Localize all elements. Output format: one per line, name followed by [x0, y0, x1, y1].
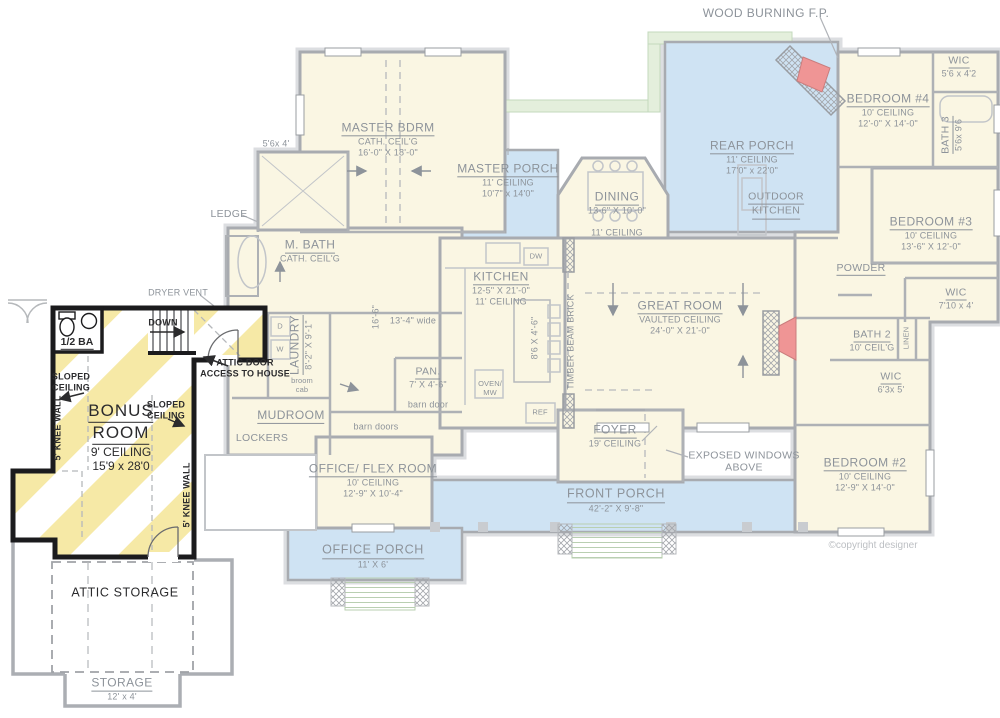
- room-dims: 24'-0" X 21'-0": [650, 325, 710, 336]
- label-washer-unit: W: [276, 346, 283, 355]
- callout-text: ACCESS TO HOUSE: [200, 368, 290, 379]
- room-dims: 7' X 4'-6": [409, 380, 447, 391]
- room-ceiling: 9' CEILING: [91, 445, 151, 459]
- label-m-bath: M. BATH CATH. CEIL'G: [280, 238, 340, 265]
- label-dryer-vent: DRYER VENT: [148, 288, 208, 299]
- room-name: MUDROOM: [257, 408, 324, 424]
- room-name: OFFICE PORCH: [322, 542, 424, 559]
- label-timber-beam: TIMBER BEAM BRICK: [566, 294, 577, 389]
- label-rear-porch: REAR PORCH 11' CEILING 17'0" x 22'0": [710, 138, 794, 175]
- door-note: barn doors: [353, 422, 398, 433]
- room-name: LAUNDRY: [288, 315, 304, 375]
- room-name: STORAGE: [91, 676, 152, 692]
- label-attic-storage: ATTIC STORAGE: [71, 586, 178, 601]
- room-dims: 5'6x 9'6: [954, 119, 965, 151]
- label-hall-length: 16'-6": [371, 305, 382, 329]
- room-name: LINEN: [903, 327, 912, 350]
- room-ceiling: 10' CEILING: [905, 230, 957, 241]
- label-wood-burning-fp: WOOD BURNING F.P.: [703, 6, 830, 20]
- label-wic-bed2: WIC 6'3x 5': [878, 371, 905, 396]
- label-pantry: PAN. 7' X 4'-6": [409, 366, 447, 391]
- room-dims: 12'-9" X 10'-4": [343, 488, 403, 499]
- room-dims: 15'9 x 28'0: [92, 459, 149, 473]
- room-name: OUTDOOR: [748, 191, 804, 205]
- room-ceiling: 10' CEILING: [862, 107, 914, 118]
- room-name: KITCHEN: [473, 269, 528, 285]
- appliance-text: MW: [483, 389, 497, 398]
- room-name: DINING: [595, 190, 639, 206]
- label-knee-wall-left: 5' KNEE WALL: [53, 395, 64, 460]
- label-dishwasher: DW: [530, 253, 543, 262]
- room-name: BEDROOM #3: [890, 214, 973, 230]
- room-name: WIC: [948, 55, 969, 69]
- room-name: BEDROOM #2: [824, 455, 907, 471]
- room-name: POWDER: [836, 262, 885, 276]
- room-ceiling: 19' CEILING: [589, 439, 641, 450]
- hall-dims: 16'-6": [371, 305, 382, 329]
- room-name: 1/2 BA: [61, 336, 94, 350]
- wall-note: 5' KNEE WALL: [182, 462, 193, 527]
- room-name: ATTIC STORAGE: [71, 586, 178, 601]
- room-dims: 10'7" x 14'0": [482, 188, 534, 199]
- room-name: GREAT ROOM: [638, 298, 723, 314]
- callout-text: LEDGE: [210, 208, 247, 220]
- room-dims: 12'-0" X 14'-0": [858, 118, 918, 129]
- label-wic-bed3: WIC 7'10 x 4': [939, 287, 974, 312]
- room-dims: 5'6x 4': [263, 139, 290, 150]
- label-wic-bed4: WIC 5'6 x 4'2: [942, 55, 977, 80]
- label-lockers: LOCKERS: [236, 432, 288, 444]
- room-dims: 6'3x 5': [878, 385, 905, 396]
- room-name: WIC: [880, 371, 901, 385]
- room-ceiling: 11' CEILING: [475, 296, 527, 307]
- room-name: WIC: [945, 287, 966, 301]
- label-master-porch: MASTER PORCH 11' CEILING 10'7" x 14'0": [457, 161, 558, 198]
- label-office-flex: OFFICE/ FLEX ROOM 10' CEILING 12'-9" X 1…: [309, 461, 437, 498]
- room-dims: 13'-6" X 12'-0": [901, 241, 961, 252]
- label-kitchen: KITCHEN 12-5" X 21'-0" 11' CEILING: [472, 269, 530, 306]
- callout-text: DRYER VENT: [148, 288, 208, 299]
- callout-text: ATTIC DOOR: [216, 357, 273, 368]
- label-great-room: GREAT ROOM VAULTED CEILING 24'-0" X 21'-…: [638, 298, 723, 335]
- label-hall-width: 13'-4" wide: [390, 316, 436, 327]
- label-office-porch: OFFICE PORCH 11' X 6': [322, 542, 424, 569]
- ceiling-note: CEILING: [52, 382, 90, 393]
- wall-note: TIMBER BEAM BRICK: [566, 294, 577, 389]
- appliance-text: W: [276, 346, 283, 355]
- callout-text: WOOD BURNING F.P.: [703, 6, 830, 20]
- label-laundry: LAUNDRY 8'-2" X 9'-1": [288, 315, 315, 375]
- room-ceiling: 11' CEILING: [726, 154, 778, 165]
- label-linen: LINEN: [903, 327, 912, 350]
- appliance-text: DW: [530, 253, 543, 262]
- label-oven-mw: OVEN/ MW: [478, 380, 502, 398]
- room-dims: 16'-0" X 18'-0": [358, 147, 418, 158]
- label-dining-ceiling: 11' CEILING: [591, 228, 643, 239]
- label-dining: DINING 13-6" X 10'-0": [588, 190, 646, 217]
- callout-text: ABOVE: [725, 462, 763, 474]
- wall-note: 5' KNEE WALL: [53, 395, 64, 460]
- room-dims: 5'6 x 4'2: [942, 69, 977, 80]
- label-sloped-ceiling-left: SLOPED CEILING: [52, 371, 90, 392]
- room-dims: 7'10 x 4': [939, 301, 974, 312]
- room-ceiling: 10' CEIL'G: [850, 343, 895, 354]
- door-note: barn door: [408, 400, 448, 411]
- label-foyer: FOYER 19' CEILING: [589, 423, 641, 450]
- room-name: PAN.: [416, 366, 441, 380]
- room-name: OFFICE/ FLEX ROOM: [309, 461, 437, 477]
- label-dryer-unit: D: [277, 323, 283, 332]
- room-ceiling: 10' CEILING: [839, 471, 891, 482]
- appliance-text: D: [277, 323, 283, 332]
- label-front-porch: FRONT PORCH 42'-2" X 9'-8": [567, 486, 665, 513]
- label-outdoor-kitchen: OUTDOOR KITCHEN: [748, 191, 804, 220]
- room-ceiling: CATH. CEIL'G: [358, 136, 418, 147]
- label-ref: REF: [532, 409, 547, 418]
- room-name: MASTER BDRM: [341, 120, 434, 136]
- room-name: BATH 2: [853, 329, 891, 343]
- island-dims: 8'6 X 4'-6": [530, 317, 541, 360]
- label-ledge: LEDGE: [210, 208, 247, 220]
- label-island-dims: 8'6 X 4'-6": [530, 317, 541, 360]
- room-dims: 11' X 6': [358, 559, 388, 570]
- room-ceiling: CATH. CEIL'G: [280, 254, 340, 265]
- room-name: MASTER PORCH: [457, 161, 558, 177]
- label-master-bdrm: MASTER BDRM CATH. CEIL'G 16'-0" X 18'-0": [341, 120, 434, 157]
- copyright-text: ©copyright designer: [828, 540, 917, 552]
- room-dims: 8'-2" X 9'-1": [304, 320, 315, 369]
- room-name: FOYER: [593, 423, 636, 439]
- room-name: BATH 3: [940, 116, 954, 154]
- ceiling-note: SLOPED: [52, 371, 90, 382]
- room-name: BEDROOM #4: [847, 91, 930, 107]
- label-mudroom: MUDROOM: [257, 408, 324, 424]
- label-bonus-room: BONUS ROOM 9' CEILING 15'9 x 28'0: [88, 401, 153, 473]
- label-barn-door: barn door: [408, 400, 448, 411]
- mud-porch: [205, 455, 316, 530]
- label-shower-dims: 5'6x 4': [263, 139, 290, 150]
- room-name: REAR PORCH: [710, 138, 794, 154]
- room-ceiling: 11' CEILING: [591, 228, 643, 239]
- room-dims: 17'0" x 22'0": [726, 165, 778, 176]
- room-dims: 13-6" X 10'-0": [588, 206, 646, 217]
- copyright-note: ©copyright designer: [828, 540, 917, 552]
- callout-text: EXPOSED WINDOWS: [688, 450, 799, 462]
- label-broom-cab: broom cab: [291, 377, 313, 395]
- label-barn-doors: barn doors: [353, 422, 398, 433]
- label-knee-wall-right: 5' KNEE WALL: [182, 462, 193, 527]
- label-powder: POWDER: [836, 262, 885, 276]
- room-name: BONUS: [88, 401, 153, 423]
- room-name: KITCHEN: [752, 205, 800, 219]
- label-attic-door: ATTIC DOOR ACCESS TO HOUSE: [200, 357, 290, 378]
- stair-note: DOWN: [148, 318, 177, 329]
- appliance-text: REF: [532, 409, 547, 418]
- room-dims: 12'-9" X 14'-0": [835, 482, 895, 493]
- room-ceiling: 10' CEILING: [347, 477, 399, 488]
- label-half-bath: 1/2 BA: [61, 336, 94, 350]
- label-bath2: BATH 2 10' CEIL'G: [850, 329, 895, 354]
- label-bedroom4: BEDROOM #4 10' CEILING 12'-0" X 14'-0": [847, 91, 930, 128]
- floor-plan-page: { "plan": { "copyright": "©copyright des…: [0, 0, 1000, 718]
- room-name: FRONT PORCH: [567, 486, 665, 503]
- label-bedroom2: BEDROOM #2 10' CEILING 12'-9" X 14'-0": [824, 455, 907, 492]
- room-name: ROOM: [93, 423, 150, 445]
- room-name: M. BATH: [285, 238, 336, 254]
- label-bath3: BATH 3 5'6x 9'6: [940, 116, 965, 154]
- label-bedroom3: BEDROOM #3 10' CEILING 13'-6" X 12'-0": [890, 214, 973, 251]
- label-down: DOWN: [148, 318, 177, 329]
- room-dims: 12' x 4': [107, 692, 137, 703]
- cabinet-text: cab: [296, 386, 308, 395]
- room-ceiling: VAULTED CEILING: [639, 314, 721, 325]
- label-exposed-windows: EXPOSED WINDOWS ABOVE: [688, 450, 799, 475]
- hall-dims: 13'-4" wide: [390, 316, 436, 327]
- room-ceiling: 11' CEILING: [482, 177, 534, 188]
- fixture-text: LOCKERS: [236, 432, 288, 444]
- room-dims: 42'-2" X 9'-8": [589, 503, 644, 514]
- label-storage: STORAGE 12' x 4': [91, 676, 152, 703]
- room-dims: 12-5" X 21'-0": [472, 285, 530, 296]
